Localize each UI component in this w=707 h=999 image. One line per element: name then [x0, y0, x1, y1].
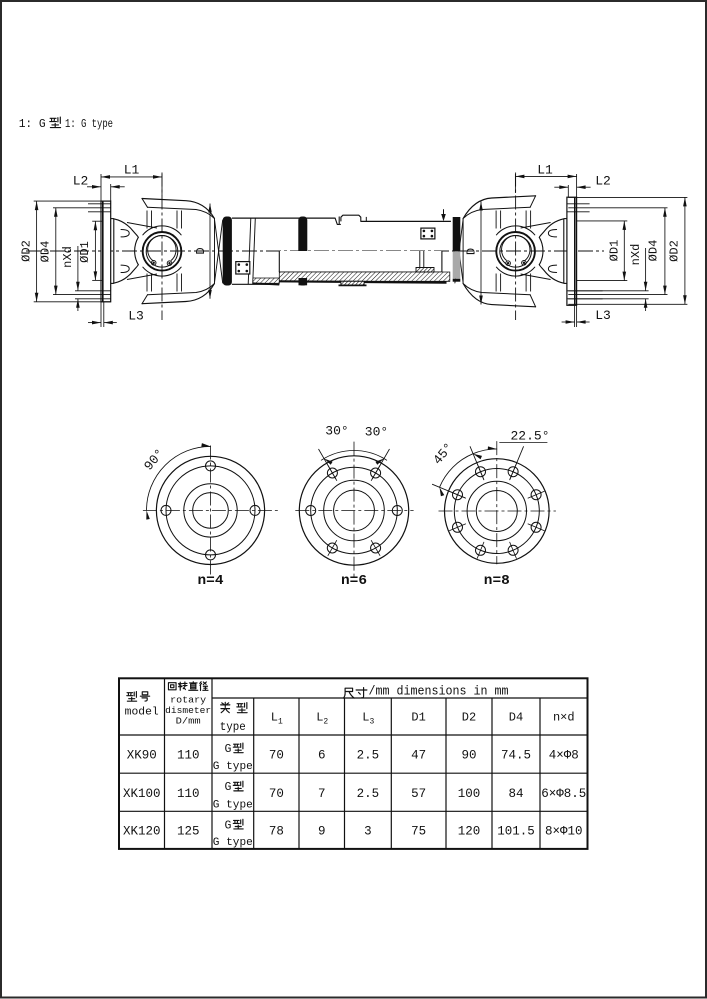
- svg-text:30°: 30°: [365, 425, 388, 440]
- svg-text:/mm dimensions in mm: /mm dimensions in mm: [369, 685, 509, 699]
- svg-text:nXd: nXd: [629, 244, 643, 266]
- svg-text:D2: D2: [462, 711, 476, 725]
- svg-text:ØD4: ØD4: [647, 240, 661, 262]
- svg-text:2.5: 2.5: [357, 749, 380, 763]
- svg-text:1: 1: [278, 718, 283, 727]
- svg-text:75: 75: [411, 825, 426, 839]
- svg-text:model: model: [125, 707, 159, 719]
- svg-text:XK90: XK90: [127, 749, 157, 763]
- svg-text:57: 57: [411, 787, 426, 801]
- svg-text:3: 3: [364, 825, 372, 839]
- svg-text:D: D: [194, 247, 208, 254]
- svg-text:n=6: n=6: [341, 573, 367, 589]
- svg-text:n=8: n=8: [484, 573, 510, 589]
- svg-text:ØD1: ØD1: [78, 241, 92, 263]
- svg-text:70: 70: [269, 749, 284, 763]
- svg-text:4×Φ8: 4×Φ8: [549, 749, 579, 763]
- svg-text:type: type: [220, 721, 246, 734]
- svg-text:rotary: rotary: [170, 695, 206, 706]
- svg-text:dismeter: dismeter: [165, 705, 211, 716]
- svg-text:L2: L2: [73, 173, 89, 188]
- svg-text:D/mm: D/mm: [176, 716, 201, 727]
- svg-text:n=4: n=4: [198, 573, 224, 589]
- svg-text:G: G: [225, 819, 232, 832]
- svg-text:L: L: [271, 711, 278, 725]
- svg-text:D1: D1: [411, 711, 425, 725]
- svg-text:ØD2: ØD2: [20, 240, 34, 262]
- svg-text:30°: 30°: [325, 424, 348, 439]
- svg-text:1: G type: 1: G type: [65, 117, 113, 131]
- svg-text:L: L: [362, 711, 369, 725]
- svg-text:L2: L2: [595, 174, 611, 189]
- svg-text:L1: L1: [124, 163, 140, 178]
- svg-text:6×Φ8.5: 6×Φ8.5: [541, 787, 586, 801]
- svg-text:G: G: [225, 781, 232, 794]
- svg-text:L3: L3: [128, 309, 144, 324]
- svg-text:100: 100: [458, 787, 481, 801]
- svg-text:120: 120: [458, 825, 481, 839]
- svg-text:G type: G type: [213, 761, 253, 773]
- svg-text:7: 7: [318, 787, 326, 801]
- svg-text:101.5: 101.5: [497, 825, 535, 839]
- svg-text:8×Φ10: 8×Φ10: [545, 825, 583, 839]
- svg-text:22.5°: 22.5°: [510, 429, 549, 444]
- svg-text:n×d: n×d: [553, 711, 575, 725]
- svg-text:ØD2: ØD2: [668, 240, 682, 262]
- svg-text:125: 125: [177, 825, 200, 839]
- svg-text:47: 47: [411, 749, 426, 763]
- svg-text:6: 6: [318, 749, 326, 763]
- svg-text:90: 90: [461, 749, 476, 763]
- svg-text:nXd: nXd: [61, 246, 75, 268]
- svg-text:L1: L1: [537, 163, 553, 178]
- svg-text:84: 84: [508, 787, 523, 801]
- svg-text:74.5: 74.5: [501, 749, 531, 763]
- svg-text:110: 110: [177, 749, 200, 763]
- svg-text:D4: D4: [509, 711, 523, 725]
- svg-text:G: G: [225, 743, 232, 756]
- svg-text:110: 110: [177, 787, 200, 801]
- svg-text:ØD4: ØD4: [39, 241, 53, 263]
- svg-text:70: 70: [269, 787, 284, 801]
- svg-text:3: 3: [369, 718, 374, 727]
- svg-text:2: 2: [323, 718, 328, 727]
- svg-text:XK100: XK100: [123, 787, 161, 801]
- svg-text:G type: G type: [213, 799, 253, 811]
- svg-text:78: 78: [269, 825, 284, 839]
- svg-text:L3: L3: [595, 308, 611, 323]
- svg-text:1: G: 1: G: [19, 117, 46, 131]
- svg-text:D: D: [465, 248, 479, 255]
- svg-text:ØD1: ØD1: [608, 240, 622, 262]
- svg-text:XK120: XK120: [123, 825, 161, 839]
- svg-text:L: L: [316, 711, 323, 725]
- svg-text:9: 9: [318, 825, 326, 839]
- svg-text:2.5: 2.5: [357, 787, 380, 801]
- svg-text:G type: G type: [213, 837, 253, 849]
